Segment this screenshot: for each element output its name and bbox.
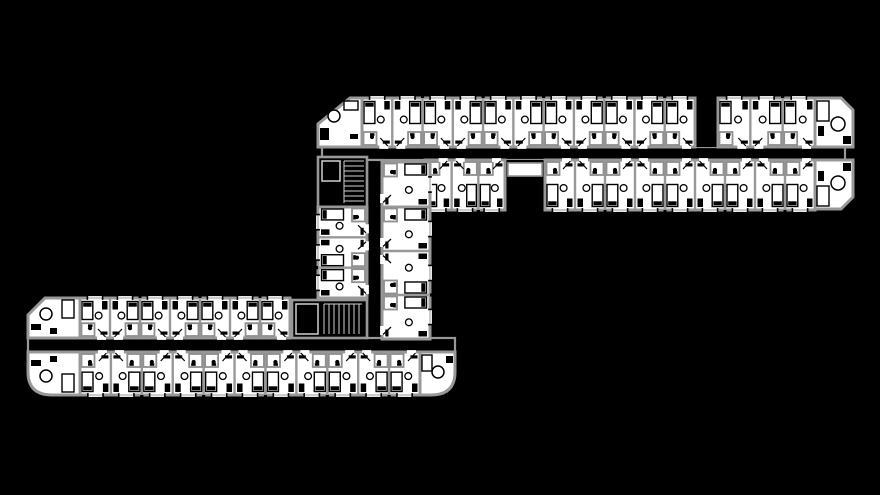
facade-bump (477, 210, 480, 214)
window-jamb (612, 208, 614, 212)
south-stair-block (292, 300, 367, 338)
window-jamb (334, 393, 336, 397)
facade-bump (421, 94, 424, 98)
sink (673, 133, 678, 136)
window-jamb (316, 229, 320, 231)
window-jamb (429, 96, 431, 100)
sink (531, 133, 536, 136)
window-jamb (792, 208, 794, 212)
table (740, 185, 747, 192)
wardrobe (165, 384, 171, 393)
round-tub (831, 176, 845, 190)
sink (793, 171, 798, 174)
window-jamb (642, 208, 644, 212)
sink (410, 133, 415, 136)
sink (713, 171, 718, 174)
table (305, 373, 312, 380)
sink (393, 170, 396, 175)
window-jamb (222, 296, 224, 300)
bed-pillow (728, 201, 736, 205)
table (703, 185, 710, 192)
sink (592, 133, 597, 136)
wardrobe (497, 199, 503, 208)
window-jamb (741, 96, 743, 100)
wardrobe (747, 199, 753, 208)
wardrobe (288, 384, 294, 393)
north-wing-bottom-row-west (425, 158, 505, 214)
floor-plan-drawing (0, 0, 880, 495)
bed-pillow (263, 303, 271, 307)
window-jamb (457, 208, 459, 212)
table (498, 116, 505, 123)
table (95, 312, 102, 319)
window-jamb (319, 393, 321, 397)
bed-pillow (83, 386, 92, 390)
sink (770, 133, 775, 136)
furniture-block (31, 360, 41, 366)
table (491, 185, 498, 192)
window-jamb (133, 393, 135, 397)
sink (191, 363, 196, 366)
table (583, 185, 590, 192)
sink (315, 363, 320, 366)
window-jamb (365, 393, 367, 397)
window-jamb (316, 274, 320, 276)
window-jamb (87, 393, 89, 397)
window-jamb (656, 96, 658, 100)
bed-pillow (330, 386, 339, 390)
round-tub (831, 117, 845, 131)
window-jamb (102, 296, 104, 300)
bed (422, 355, 432, 371)
bed-pillow (128, 303, 136, 307)
table (343, 373, 350, 380)
table (799, 116, 806, 123)
sink (773, 171, 778, 174)
window-jamb (627, 208, 629, 212)
wardrobe (807, 101, 813, 110)
sink (791, 133, 796, 136)
bed-pillow (713, 201, 721, 205)
bed-pillow (788, 201, 796, 205)
wardrobe (233, 301, 239, 310)
bed-pillow (668, 201, 676, 205)
bed-pillow (145, 386, 154, 390)
window-jamb (316, 290, 320, 292)
bed-pillow (548, 201, 556, 205)
sink (471, 133, 476, 136)
table (219, 373, 226, 380)
sink (613, 171, 618, 174)
window-jamb (483, 208, 485, 212)
wardrobe (626, 101, 632, 110)
window-jamb (428, 221, 432, 223)
window-jamb (316, 214, 320, 216)
window-jamb (535, 96, 537, 100)
window-jamb (472, 208, 474, 212)
window-jamb (414, 96, 416, 100)
table (643, 116, 650, 123)
window-jamb (611, 96, 613, 100)
wardrobe (113, 384, 119, 393)
window-jamb (498, 208, 500, 212)
wardrobe (175, 384, 181, 393)
wardrobe (578, 199, 584, 208)
furniture-block (50, 328, 57, 334)
wardrobe (173, 301, 179, 310)
sink (393, 303, 396, 308)
window-jamb (396, 393, 398, 397)
bed-pillow (188, 303, 196, 307)
sink (353, 255, 356, 260)
south-wing-bottom-row (80, 350, 420, 399)
bed-pillow (365, 103, 373, 107)
window-jamb (726, 96, 728, 100)
wardrobe (637, 101, 643, 110)
table (281, 373, 288, 380)
window-jamb (581, 96, 583, 100)
bed-pillow (192, 386, 201, 390)
wardrobe (102, 301, 108, 310)
window-jamb (505, 96, 507, 100)
table (438, 116, 445, 123)
bed-pillow (608, 201, 616, 205)
sink (248, 324, 253, 327)
sink (188, 324, 193, 327)
wardrobe (299, 384, 305, 393)
window-jamb (211, 393, 213, 397)
window-jamb (657, 208, 659, 212)
furniture-block (818, 171, 824, 181)
bed (62, 300, 74, 318)
bed-pillow (315, 386, 324, 390)
bed-pillow (323, 210, 327, 219)
furniture-block (31, 324, 41, 330)
facade-bump (482, 94, 485, 98)
window-jamb (762, 208, 764, 212)
window-jamb (399, 96, 401, 100)
facade-bump (663, 94, 666, 98)
room-row-outline (382, 207, 430, 339)
window-jamb (596, 96, 598, 100)
wardrobe (753, 101, 759, 110)
bed-pillow (786, 103, 795, 107)
facade-bump (199, 294, 202, 298)
table (96, 373, 103, 380)
sink (653, 171, 658, 174)
window-jamb (162, 296, 164, 300)
north-corridor (322, 147, 845, 160)
facade-bump (314, 266, 318, 269)
window-jamb (369, 96, 371, 100)
window-jamb (626, 96, 628, 100)
facade-bump (140, 395, 143, 399)
sink (268, 324, 273, 327)
facade-bump (784, 210, 787, 214)
bed-pillow (377, 386, 386, 390)
facade-bump (326, 395, 329, 399)
wardrobe (113, 301, 119, 310)
sink (612, 133, 617, 136)
window-jamb (147, 296, 149, 300)
furniture-block (50, 356, 57, 362)
bed-pillow (143, 303, 151, 307)
sink (393, 283, 396, 288)
window-jamb (384, 96, 386, 100)
window-jamb (411, 393, 413, 397)
bed-pillow (426, 103, 434, 107)
window-jamb (237, 296, 239, 300)
light-well-niche (695, 98, 718, 147)
south-wing-east-cap (420, 352, 455, 395)
furniture-block (446, 356, 453, 363)
bed-pillow (392, 386, 401, 390)
window-jamb (207, 296, 209, 300)
window-jamb (102, 393, 104, 397)
sink (726, 133, 731, 136)
wardrobe (419, 243, 428, 249)
window-jamb (597, 208, 599, 212)
void-floor (695, 98, 718, 147)
round-tub (328, 110, 340, 122)
stair-outline (318, 157, 367, 207)
north-wing-east-cap-top (815, 98, 853, 147)
sink (208, 324, 213, 327)
sink (733, 171, 738, 174)
table (158, 373, 165, 380)
table (800, 185, 807, 192)
window-jamb (195, 393, 197, 397)
bed-pillow (411, 103, 419, 107)
wardrobe (445, 101, 451, 110)
wardrobe (444, 199, 450, 208)
bed-pillow (771, 103, 780, 107)
facade-bump (604, 210, 607, 214)
wardrobe (516, 101, 522, 110)
wardrobe (455, 101, 461, 110)
window-jamb (380, 393, 382, 397)
sink (129, 363, 134, 366)
facade-bump (542, 94, 545, 98)
furniture-block (843, 163, 851, 171)
wardrobe (321, 240, 330, 246)
north-wing-top-row-east (718, 94, 815, 149)
wardrobe (395, 101, 401, 110)
sink (253, 363, 257, 366)
window-jamb (567, 208, 569, 212)
sink (377, 363, 382, 366)
wardrobe (742, 101, 748, 110)
table (521, 116, 528, 123)
facade-bump (724, 210, 727, 214)
window-jamb (149, 393, 151, 397)
wardrobe (282, 301, 288, 310)
window-jamb (687, 96, 689, 100)
furniture-block (843, 136, 851, 144)
wardrobe (638, 199, 644, 208)
window-jamb (192, 296, 194, 300)
wardrobe (419, 331, 428, 337)
plan-background (0, 0, 880, 495)
sink (273, 363, 278, 366)
floor-plan-page (0, 0, 880, 495)
link-corridor (367, 160, 382, 352)
sink (88, 363, 93, 366)
table (620, 185, 627, 192)
window-jamb (428, 309, 432, 311)
table (560, 185, 567, 192)
window-jamb (180, 393, 182, 397)
window-jamb (267, 296, 269, 300)
north-wing-top-row-west (362, 94, 695, 149)
window-jamb (273, 393, 275, 397)
sink (353, 276, 356, 281)
table (155, 312, 162, 319)
sink (431, 133, 436, 136)
sink (353, 215, 356, 220)
window-jamb (316, 259, 320, 261)
wardrobe (807, 199, 813, 208)
window-jamb (132, 296, 134, 300)
window-jamb (428, 176, 432, 178)
bed-pillow (653, 103, 661, 107)
wardrobe (454, 199, 460, 208)
wardrobe (384, 101, 390, 110)
window-jamb (428, 236, 432, 238)
wardrobe (758, 199, 764, 208)
table (680, 185, 687, 192)
bed-pillow (653, 201, 661, 205)
table (275, 312, 282, 319)
bed (817, 186, 829, 206)
bed-pillow (668, 103, 676, 107)
bed-pillow (468, 201, 475, 205)
bed-pillow (486, 103, 494, 107)
sink (491, 133, 496, 136)
table (643, 185, 650, 192)
table (405, 187, 412, 194)
sink (150, 363, 155, 366)
window-jamb (350, 393, 352, 397)
window-jamb (118, 393, 120, 397)
round-tub (40, 308, 52, 320)
window-jamb (550, 96, 552, 100)
wardrobe (361, 384, 367, 393)
bed-pillow (421, 283, 425, 292)
bed-pillow (592, 103, 600, 107)
window-jamb (732, 208, 734, 212)
sink (393, 215, 396, 220)
sink (673, 171, 678, 174)
furniture-block (818, 126, 824, 136)
window-jamb (242, 393, 244, 397)
bed-pillow (83, 303, 91, 307)
window-jamb (490, 96, 492, 100)
bed-pillow (547, 103, 555, 107)
bed-pillow (203, 303, 211, 307)
bed-pillow (421, 165, 425, 174)
bed-pillow (421, 210, 425, 219)
north-stair-block (318, 157, 367, 207)
window-jamb (773, 96, 775, 100)
facade-bump (664, 210, 667, 214)
bed-pillow (532, 103, 540, 107)
bed-pillow (482, 201, 489, 205)
window-jamb (445, 208, 447, 212)
table (336, 245, 343, 252)
facade-bump (202, 395, 205, 399)
wardrobe (576, 101, 582, 110)
wardrobe (227, 384, 233, 393)
window-jamb (87, 296, 89, 300)
table (405, 231, 412, 238)
window-jamb (552, 208, 554, 212)
window-jamb (807, 208, 809, 212)
table (735, 116, 742, 123)
table (377, 116, 384, 123)
wardrobe (162, 301, 168, 310)
facade-bump (139, 294, 142, 298)
elevator-cab (508, 163, 542, 176)
bed-pillow (593, 201, 601, 205)
table (181, 373, 188, 380)
facade-bump (430, 294, 434, 297)
bed-pillow (323, 256, 327, 265)
south-wing-west-cap-bottom (28, 352, 80, 395)
table (559, 116, 566, 123)
furniture-block (320, 128, 329, 140)
sink (397, 363, 402, 366)
facade-bump (603, 94, 606, 98)
wardrobe (419, 254, 428, 260)
sink (88, 324, 93, 327)
table (582, 116, 589, 123)
table (405, 264, 412, 271)
bed-pillow (471, 103, 479, 107)
window-jamb (428, 324, 432, 326)
facade-bump (781, 94, 784, 98)
table (405, 319, 412, 326)
window-jamb (747, 208, 749, 212)
table (238, 312, 245, 319)
window-jamb (164, 393, 166, 397)
wardrobe (505, 101, 511, 110)
table (620, 116, 627, 123)
bed-pillow (207, 386, 216, 390)
wardrobe (321, 229, 330, 235)
table (178, 312, 185, 319)
window-jamb (566, 96, 568, 100)
bed-pillow (421, 298, 425, 307)
sink (212, 363, 217, 366)
window-jamb (282, 296, 284, 300)
wardrobe (321, 290, 330, 296)
table (458, 185, 465, 192)
facade-bump (264, 395, 267, 399)
elevator-lobby (505, 160, 545, 210)
wardrobe (103, 384, 109, 393)
window-jamb (316, 244, 320, 246)
link-wing-corner-room (380, 162, 432, 207)
sink (335, 363, 340, 366)
table (680, 116, 687, 123)
wardrobe (350, 384, 356, 393)
table (367, 373, 374, 380)
window-jamb (226, 393, 228, 397)
bed (344, 101, 358, 110)
sink (593, 171, 598, 174)
wardrobe (567, 199, 573, 208)
